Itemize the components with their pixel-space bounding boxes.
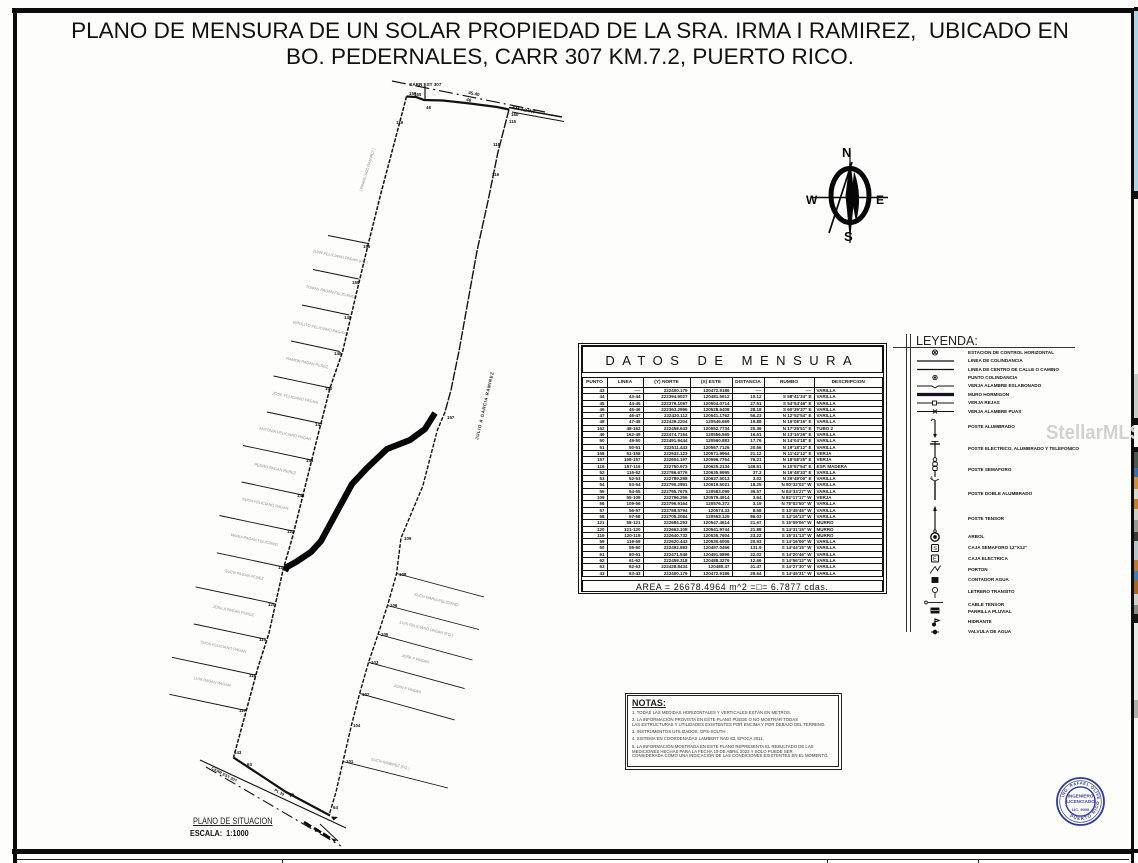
svg-text:116: 116 (493, 142, 501, 147)
svg-text:160: 160 (414, 92, 422, 97)
svg-text:105: 105 (381, 632, 389, 637)
svg-text:4: 4 (930, 476, 933, 482)
svg-text:( FRANCISCO RAMIREZ ): ( FRANCISCO RAMIREZ ) (359, 147, 376, 192)
svg-text:150: 150 (352, 280, 360, 285)
svg-text:48: 48 (426, 105, 431, 110)
svg-text:63: 63 (247, 762, 252, 767)
svg-text:104: 104 (353, 723, 361, 728)
svg-text:149: 149 (344, 315, 352, 320)
svg-text:SUCN MARIA FELICIANO: SUCN MARIA FELICIANO (414, 592, 460, 608)
svg-text:118: 118 (249, 673, 257, 678)
svg-text:N: N (842, 145, 851, 160)
svg-text:148: 148 (334, 351, 342, 356)
svg-text:CARR EST 307: CARR EST 307 (409, 82, 442, 87)
svg-text:155: 155 (363, 244, 371, 249)
svg-text:116: 116 (492, 172, 500, 177)
svg-text:E: E (933, 557, 937, 563)
svg-text:JOSE FELICIANO PAGAN: JOSE FELICIANO PAGAN (272, 390, 318, 405)
svg-text:SUCN RAMIREZ (FQ.): SUCN RAMIREZ (FQ.) (370, 756, 410, 771)
svg-text:MARIA PAGAN FELICIANO: MARIA PAGAN FELICIANO (230, 532, 278, 547)
svg-text:S: S (844, 229, 853, 244)
svg-text:119: 119 (396, 120, 404, 125)
svg-text:106: 106 (390, 603, 398, 608)
svg-text:103: 103 (371, 660, 379, 665)
svg-text:115: 115 (509, 119, 517, 124)
svg-text:SUCN FELICIANO PAGAN: SUCN FELICIANO PAGAN (242, 496, 289, 511)
svg-text:143: 143 (234, 750, 242, 755)
svg-text:E: E (876, 193, 884, 207)
svg-text:PL 30: PL 30 (274, 787, 286, 797)
svg-text:122: 122 (287, 529, 295, 534)
svg-text:JUAN FELICIANO PAGAN (FQ.): JUAN FELICIANO PAGAN (FQ.) (312, 248, 369, 265)
svg-text:CARR EST 307: CARR EST 307 (211, 765, 239, 783)
svg-text:146: 146 (306, 458, 314, 463)
svg-text:102: 102 (362, 692, 370, 697)
svg-text:108: 108 (399, 572, 407, 577)
svg-text:LUIS PAGAN PAGAN: LUIS PAGAN PAGAN (193, 675, 231, 688)
svg-text:101: 101 (346, 759, 354, 764)
svg-text:S: S (933, 546, 937, 552)
svg-text:TOMAS PAGAN FELICIANO: TOMAS PAGAN FELICIANO (305, 284, 355, 299)
svg-text:157: 157 (447, 415, 455, 420)
svg-text:64: 64 (333, 805, 338, 810)
svg-text:LUIS FELICIANO PAGAN (FQ.): LUIS FELICIANO PAGAN (FQ.) (399, 619, 454, 637)
svg-text:INGENIERO: INGENIERO (1068, 794, 1094, 799)
svg-text:PEDRO PAGAN PEREZ: PEDRO PAGAN PEREZ (254, 462, 297, 476)
svg-text:SUCN PAGAN PEREZ: SUCN PAGAN PEREZ (224, 568, 264, 581)
svg-text:JULIO A GARCIA RAMIREZ: JULIO A GARCIA RAMIREZ (474, 371, 495, 440)
svg-text:ANTONIA FELICIANO PAGAN: ANTONIA FELICIANO PAGAN (259, 426, 312, 442)
svg-text:JUAN F PAGAN: JUAN F PAGAN (393, 683, 422, 695)
svg-text:119: 119 (259, 637, 267, 642)
svg-text:147: 147 (315, 422, 323, 427)
svg-text:100: 100 (325, 386, 333, 391)
svg-text:117: 117 (239, 708, 247, 713)
svg-text:JOSE F PAGAN: JOSE F PAGAN (401, 653, 430, 665)
svg-text:SUCN FELICIANO PAGAN: SUCN FELICIANO PAGAN (200, 639, 247, 654)
svg-text:109: 109 (404, 536, 412, 541)
svg-text:HIPOLITO FELICIANO PAGAN: HIPOLITO FELICIANO PAGAN (292, 319, 346, 335)
svg-text:120: 120 (268, 602, 276, 607)
svg-text:LICENCIADO: LICENCIADO (1066, 799, 1095, 804)
svg-text:145: 145 (297, 493, 305, 498)
svg-text:JOSE A PAGAN PEREZ: JOSE A PAGAN PEREZ (212, 604, 255, 618)
svg-text:160: 160 (511, 112, 519, 117)
svg-text:46: 46 (466, 97, 472, 103)
svg-text:LIC. 9000: LIC. 9000 (1072, 807, 1090, 812)
svg-text:RAMON PAGAN PEREZ: RAMON PAGAN PEREZ (286, 356, 330, 370)
svg-text:W: W (806, 193, 818, 207)
svg-text:121: 121 (278, 565, 286, 570)
